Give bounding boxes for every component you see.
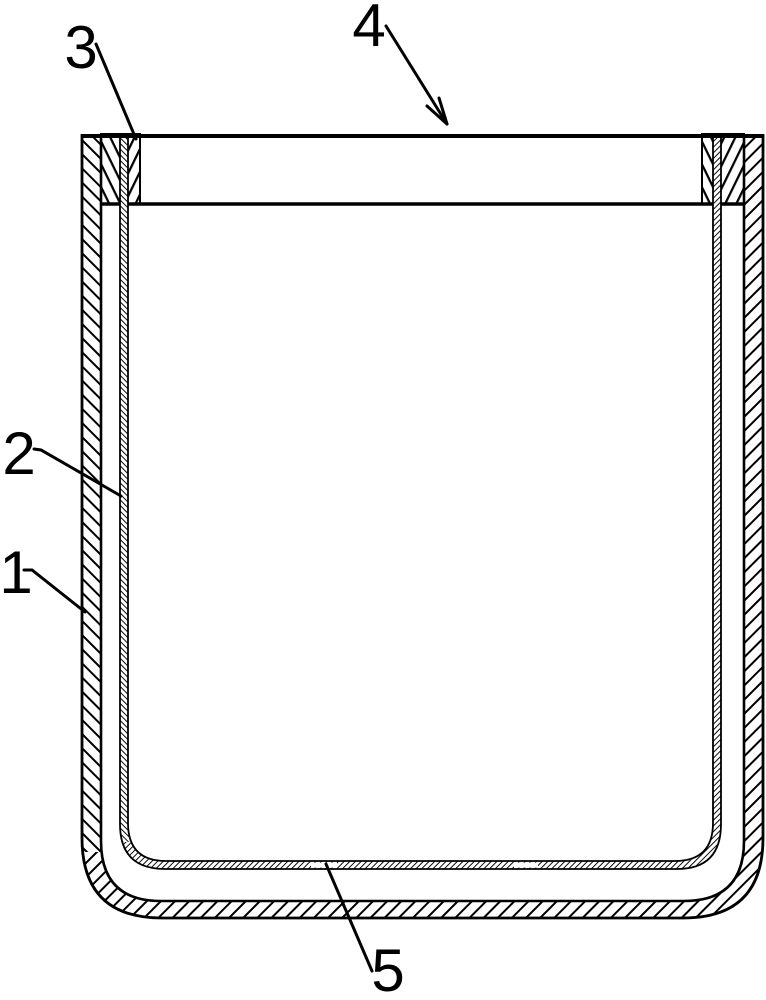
ref-label-5: 5 bbox=[371, 937, 404, 1000]
inner-liner-inner-edge bbox=[128, 134, 713, 861]
collar-right bbox=[702, 134, 744, 204]
outer-wall-hatch bbox=[78, 128, 766, 924]
inner-liner-hatch-left bbox=[116, 128, 132, 842]
leader-line-3 bbox=[96, 44, 136, 139]
ref-label-3: 3 bbox=[64, 14, 97, 81]
leader-arrowhead-4 bbox=[427, 98, 447, 124]
outer-wall-outer-edge bbox=[82, 134, 763, 918]
inner-liner-hatch bbox=[116, 128, 736, 876]
leader-line-1 bbox=[24, 570, 85, 612]
leader-line-4 bbox=[386, 26, 447, 124]
inner-liner bbox=[116, 128, 736, 876]
outer-wall bbox=[78, 128, 766, 924]
liner-slot-right bbox=[514, 863, 538, 868]
ref-label-4: 4 bbox=[352, 0, 385, 59]
ref-label-1: 1 bbox=[0, 539, 33, 606]
outer-wall-inner-edge bbox=[101, 134, 744, 901]
liner-slot-left bbox=[311, 863, 337, 868]
leader-line-4-shaft bbox=[386, 26, 447, 124]
leader-line-2 bbox=[34, 449, 121, 496]
patent-figure-canvas: 3 4 2 1 5 bbox=[0, 0, 766, 1000]
ref-label-2: 2 bbox=[2, 420, 35, 487]
patent-figure: 3 4 2 1 5 bbox=[0, 0, 766, 1000]
inner-liner-outer-edge bbox=[120, 134, 721, 869]
